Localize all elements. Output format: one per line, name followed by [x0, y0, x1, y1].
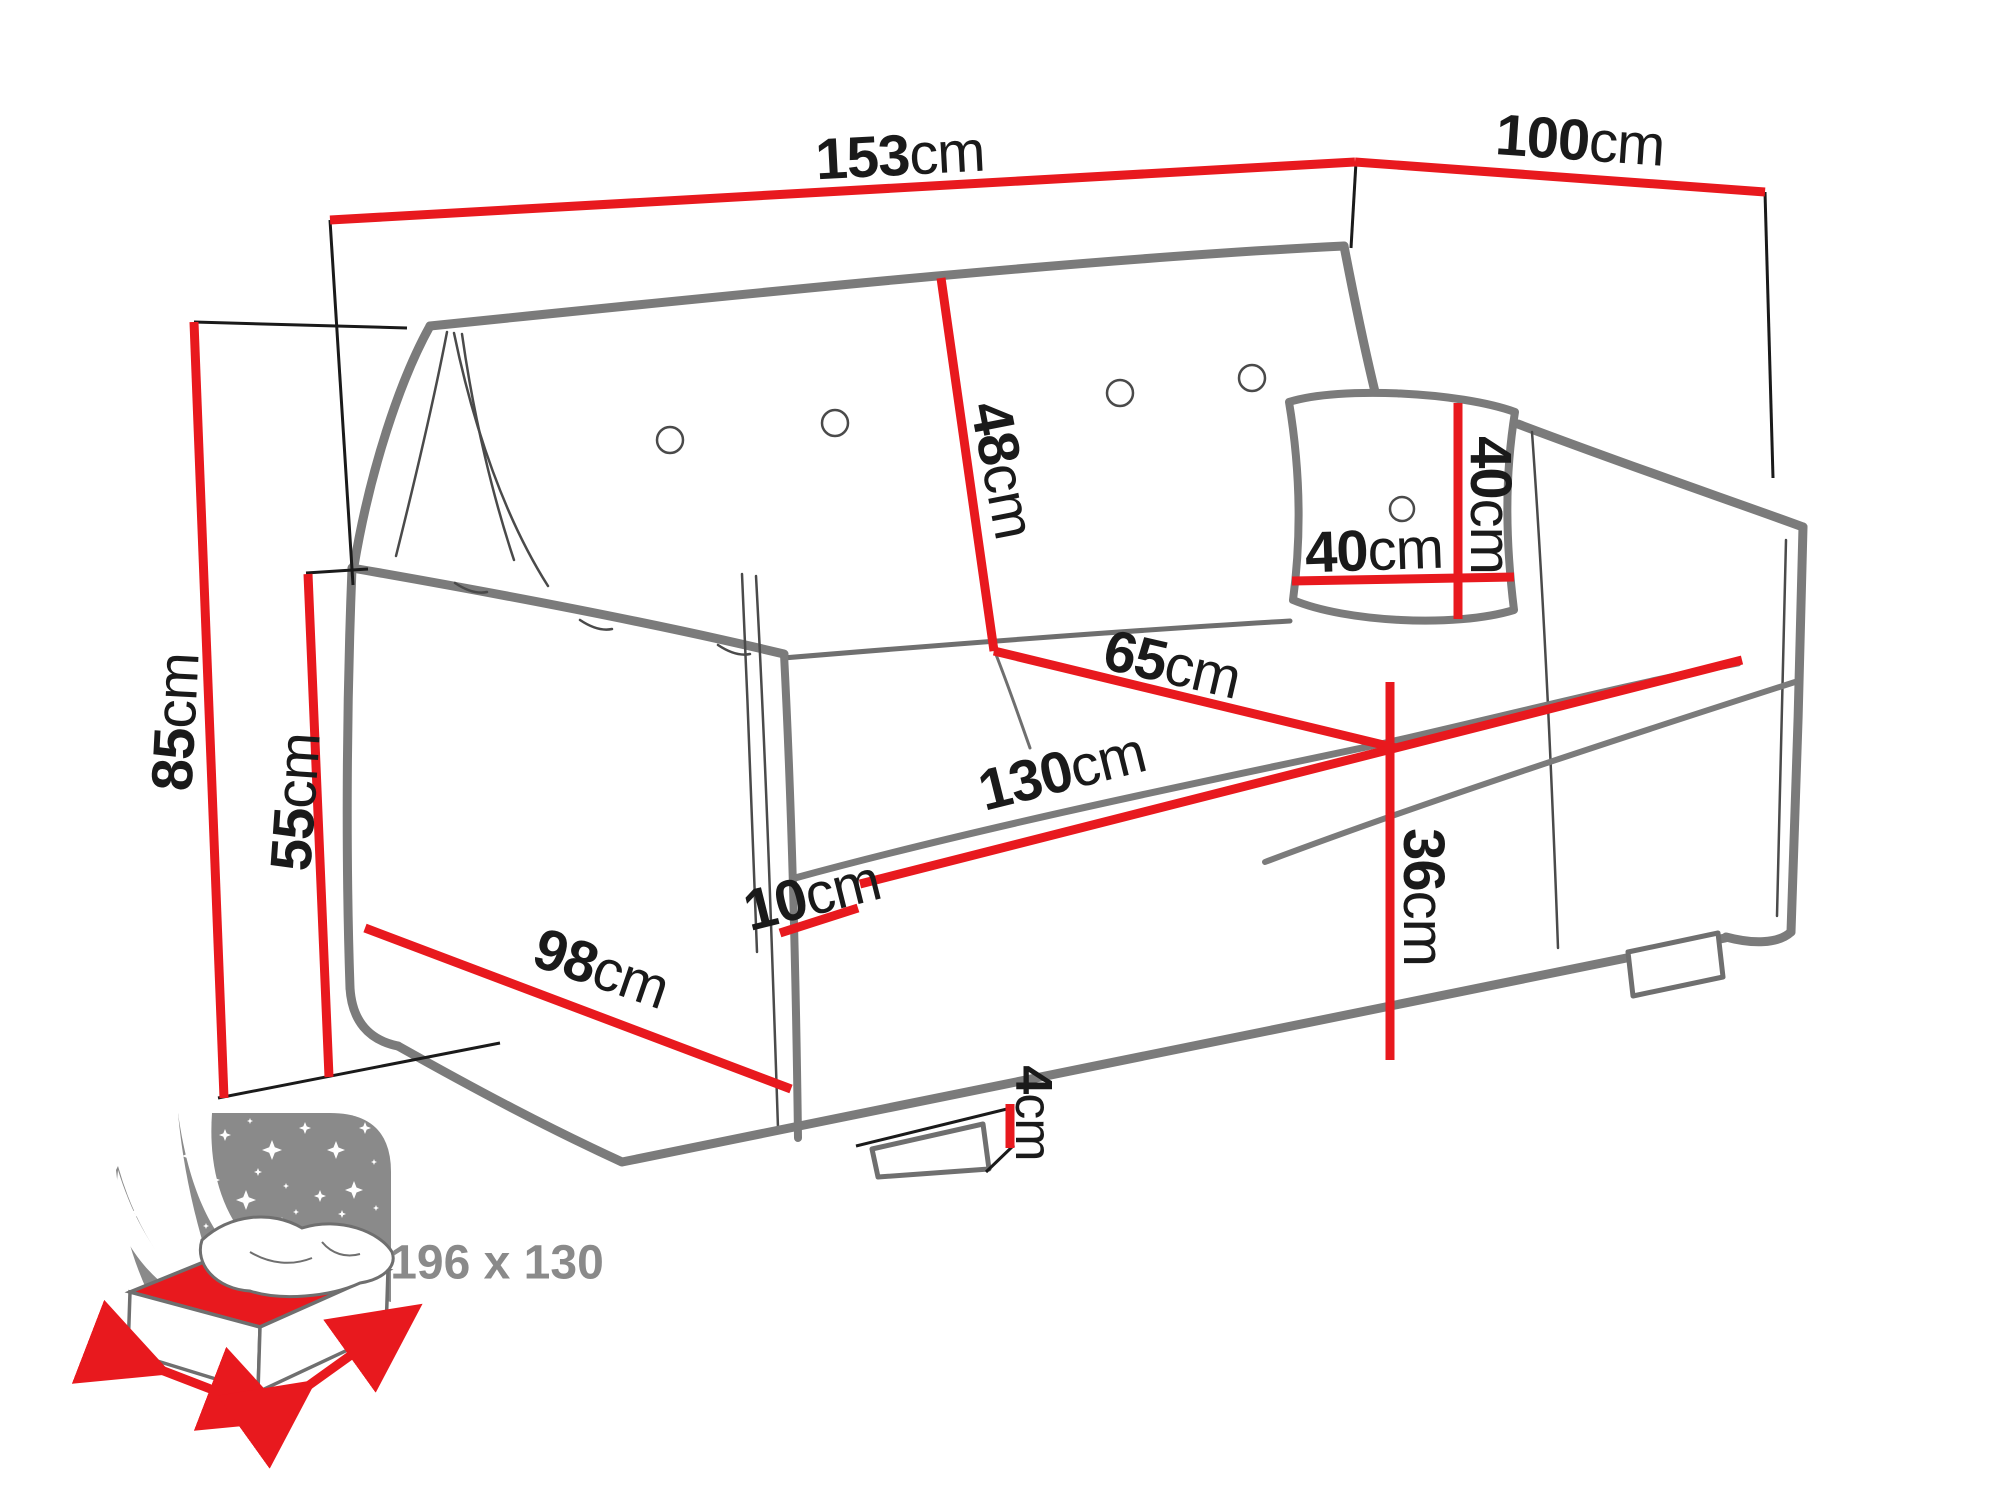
star-icon [154, 1124, 166, 1136]
star-icon [165, 1187, 171, 1193]
sofa-line-art [342, 246, 1806, 1177]
dim-label-overall-width: 153cm [814, 123, 986, 190]
sofa-dimension-diagram: 153cm 100cm 85cm 55cm 48cm 65cm 130cm 10… [0, 0, 2000, 1500]
dim-label-seat-height: 36cm [1394, 828, 1452, 966]
dim-label-armrest-height: 55cm [262, 731, 329, 873]
dim-label-pillow-width: 40cm [1304, 520, 1444, 583]
dim-label-total-height: 85cm [143, 652, 208, 793]
dim-label-pillow-height: 40cm [1461, 436, 1519, 574]
bed-icon [114, 1113, 393, 1406]
dim-label-leg-height: 4cm [1007, 1065, 1059, 1160]
dim-label-overall-depth: 100cm [1494, 106, 1667, 176]
sleeping-area-size-label: 196 x 130 [390, 1236, 604, 1291]
sofa-left-armrest [350, 568, 798, 1162]
sofa-front-leg [872, 1124, 989, 1177]
